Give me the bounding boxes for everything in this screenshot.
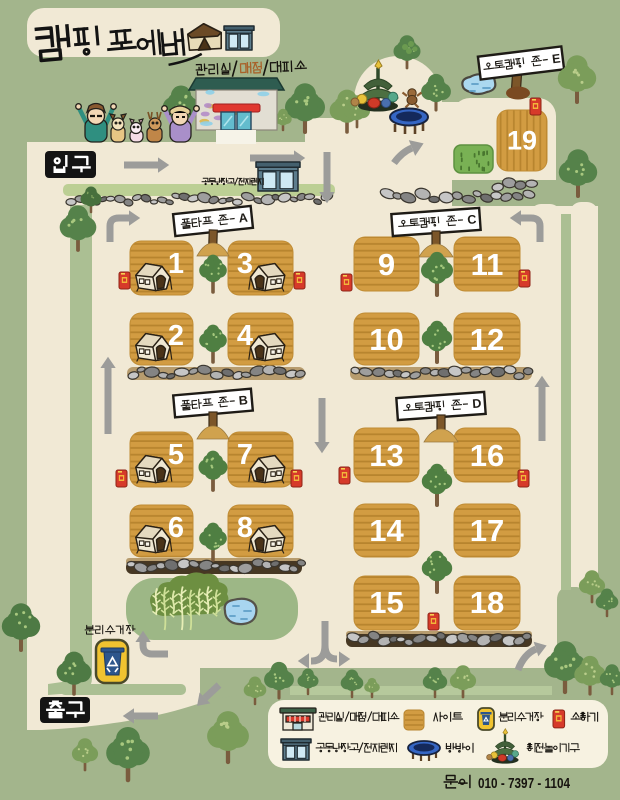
- svg-text:E: E: [551, 51, 561, 66]
- svg-text:B: B: [238, 393, 248, 408]
- svg-text:19: 19: [507, 125, 537, 155]
- svg-text:2: 2: [168, 320, 184, 352]
- svg-text:13: 13: [369, 438, 403, 473]
- svg-text:4: 4: [237, 320, 253, 352]
- svg-text:7: 7: [237, 439, 253, 471]
- svg-text:10: 10: [369, 322, 403, 357]
- svg-text:17: 17: [470, 513, 504, 548]
- svg-text:18: 18: [470, 585, 504, 620]
- svg-text:5: 5: [168, 439, 184, 471]
- svg-text:12: 12: [470, 322, 504, 357]
- svg-text:8: 8: [237, 512, 253, 544]
- svg-text:1: 1: [168, 248, 184, 280]
- svg-text:3: 3: [237, 248, 253, 280]
- svg-text:11: 11: [471, 247, 504, 282]
- svg-text:15: 15: [369, 585, 403, 620]
- svg-text:A: A: [238, 211, 248, 226]
- svg-text:C: C: [467, 212, 477, 227]
- svg-text:16: 16: [470, 438, 504, 473]
- svg-text:6: 6: [168, 512, 184, 544]
- svg-text:D: D: [472, 396, 482, 411]
- svg-text:9: 9: [378, 247, 395, 282]
- svg-text:14: 14: [369, 513, 404, 548]
- svg-text:010 - 7397 - 1104: 010 - 7397 - 1104: [478, 775, 571, 792]
